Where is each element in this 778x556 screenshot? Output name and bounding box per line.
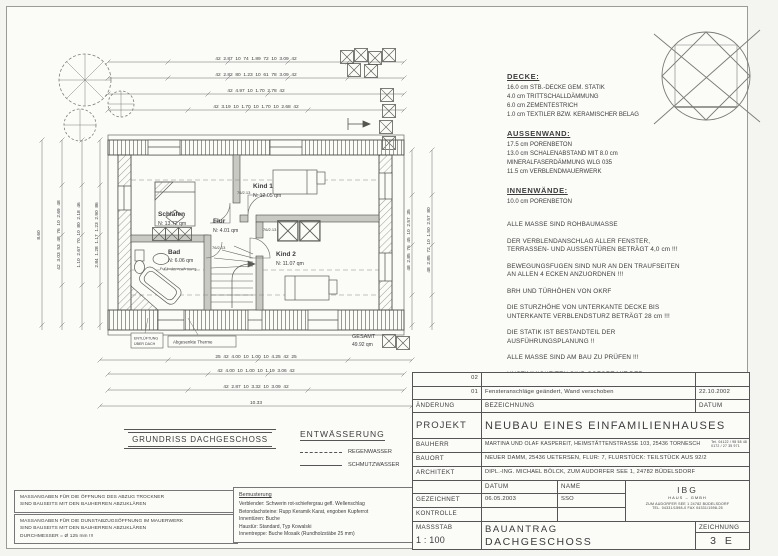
aussenwand-heading: AUSSENWAND: — [507, 129, 745, 138]
revision-date: 22.10.2002 — [695, 386, 749, 399]
kontrolle-datum — [481, 507, 557, 521]
wastewater-line-sample — [300, 465, 342, 466]
innenwaende-lines: 10.0 cm PORENBETON — [507, 198, 745, 207]
svg-text:42 2.87 10 74 1.89 72 10: 42 2.87 10 74 1.89 72 10 3.09 42 — [215, 56, 297, 62]
svg-text:76/2.13: 76/2.13 — [237, 190, 251, 195]
revision-nr: 02 — [413, 373, 481, 386]
revision-text: Fensteranschläge geändert, Wand verschob… — [481, 386, 695, 399]
kontrolle-name — [557, 507, 625, 521]
svg-text:10.33: 10.33 — [250, 400, 262, 406]
shrub-icon — [341, 49, 410, 350]
company-phone: TEL. 04331/1598-0 FAX 04331/1598-25 — [629, 506, 746, 510]
svg-text:Abgesenkte Therme: Abgesenkte Therme — [173, 340, 213, 345]
svg-text:8.60: 8.60 — [36, 230, 42, 240]
svg-text:GESAMT: GESAMT — [352, 334, 376, 340]
company-sub: HAUS – GMBH — [629, 495, 746, 500]
floor-plan-drawing: 76/2.13 76/2.13 76/2.13 Schlafen Kind 1 … — [8, 18, 498, 428]
room-flur-name: Flur — [213, 218, 226, 225]
architekt-value: DIPL.-ING. MICHAEL BÖLCK, ZUM AUDORFER S… — [481, 466, 749, 480]
name-col-header: NAME — [557, 480, 625, 493]
note-rohbaumasse: ALLE MASSE SIND ROHBAUMASSE — [507, 221, 745, 230]
aussenwand-lines: 17.5 cm PORENBETON 13.0 cm SCHALENABSTAN… — [507, 141, 745, 177]
total-area-label: GESAMT 49.92 qm — [352, 334, 376, 348]
bauherr-value: MARTINA UND OLAF KASPEREIT, HEIMSTÄTTENS… — [481, 438, 749, 452]
projekt-value: NEUBAU EINES EINFAMILIENHAUSES — [481, 412, 749, 438]
svg-text:42 4.00 10 1.00 10 1.19: 42 4.00 10 1.00 10 1.19 3.06 42 — [217, 368, 295, 374]
sheet-name: DACHGESCHOSS — [485, 536, 692, 548]
bed-kind1 — [273, 170, 325, 194]
svg-text:N: 13.72 qm: N: 13.72 qm — [158, 221, 186, 227]
rainwater-label: REGENWASSER — [348, 449, 392, 455]
bemusterung-box: Bemusterung Verblender: Schwerin rot-sch… — [233, 487, 419, 543]
svg-text:48 2.85 76 45 10 2.57 35: 48 2.85 76 45 10 2.57 35 — [406, 209, 412, 271]
svg-text:42 2.82 80 1.23 10 61 78: 42 2.82 80 1.23 10 61 78 3.09 42 — [215, 72, 297, 78]
gezeichnet-label: GEZEICHNET — [413, 493, 481, 507]
drainage-legend: ENTWÄSSERUNG REGENWASSER SCHMUTZWASSER — [300, 424, 420, 468]
note-bewegungsfugen: BEWEGUNGSFUGEN SIND NUR AN DEN TRAUFSEIT… — [507, 263, 745, 280]
decke-lines: 16.0 cm STB.-DECKE GEM. STATIK 4.0 cm TR… — [507, 84, 745, 120]
wastewater-label: SCHMUTZWASSER — [348, 462, 399, 468]
svg-text:42 4.97 10 1.70 2.78 42: 42 4.97 10 1.70 2.78 42 — [227, 88, 285, 94]
zeichnung-label: ZEICHNUNG — [696, 522, 749, 533]
dimension-chain-top: 42 2.87 10 74 1.89 72 10 3.09 42 42 2.82… — [106, 56, 407, 113]
gezeichnet-datum: 06.05.2003 — [481, 493, 557, 507]
bemusterung-title: Bemusterung — [239, 491, 413, 499]
wardrobe-kind2 — [278, 221, 320, 241]
svg-text:48 2.85 72 10 1.50 2.57: 48 2.85 72 10 1.50 2.57 80 — [426, 207, 432, 273]
svg-text:N: 12.05 qm: N: 12.05 qm — [253, 193, 281, 199]
svg-text:25 42 4.00 10 1.00 10 4.: 25 42 4.00 10 1.00 10 4.25 42 25 — [215, 354, 297, 360]
svg-text:N: 11.07 qm: N: 11.07 qm — [276, 261, 304, 267]
bed-kind2 — [285, 276, 337, 300]
room-schlafen-name: Schlafen — [158, 211, 185, 218]
svg-text:N: 4.01 qm: N: 4.01 qm — [213, 228, 238, 234]
svg-text:42 2.87 10 3.32 10 3.09: 42 2.87 10 3.32 10 3.09 42 — [223, 384, 289, 390]
bemusterung-lines: Verblender: Schwerin rot-schiefergrau ge… — [239, 501, 413, 539]
drawing-title: GRUNDRISS DACHGESCHOSS — [128, 432, 272, 447]
bed-schlafen — [155, 182, 195, 226]
svg-text:N: 6.06 qm: N: 6.06 qm — [168, 258, 193, 264]
note-sturzhoehe: DIE STURZHÖHE VON UNTERKANTE DECKE BIS U… — [507, 304, 745, 321]
svg-text:76/2.13: 76/2.13 — [212, 245, 226, 250]
svg-text:76/2.13: 76/2.13 — [263, 227, 277, 232]
bauherr-phone: Tel. 04122 / 98 58 48 0172 / 27 35 971 — [711, 440, 747, 449]
dimension-chain-bottom: 25 42 4.00 10 1.00 10 4.25 42 25 42 4.00… — [98, 354, 415, 409]
rainwater-line-sample — [300, 452, 342, 453]
room-kind1-name: Kind 1 — [253, 183, 273, 190]
datum-col-header: DATUM — [481, 480, 557, 493]
aenderung-header: ÄNDERUNG — [413, 399, 481, 412]
svg-text:ENTLÜFTUNG: ENTLÜFTUNG — [134, 337, 158, 341]
revision-text — [481, 373, 695, 386]
dimension-chain-left: 8.60 42 3.03 53 48 76 10 2.69 48 1.10 2.… — [36, 138, 103, 331]
room-kind2-name: Kind 2 — [276, 251, 296, 258]
massstab-value: 1 : 100 — [416, 535, 478, 545]
staircase — [211, 246, 255, 308]
datum-header: DATUM — [695, 399, 749, 412]
title-block: 02 01 Fensteranschläge geändert, Wand ve… — [412, 372, 750, 550]
bad-floor-heating-note: Fußbodenerwärmung — [160, 267, 196, 271]
svg-text:2.84 1.28 1.17 1.23 2.90: 2.84 1.28 1.17 1.23 2.90 86 — [94, 202, 100, 268]
phase-cell: BAUANTRAG DACHGESCHOSS — [481, 521, 695, 549]
company-stamp: IBG HAUS – GMBH ZUM AUDORFER SEE 1 24782… — [625, 480, 749, 521]
revision-date — [695, 373, 749, 386]
svg-text:42 3.03 53 48 76 10 2.69: 42 3.03 53 48 76 10 2.69 48 — [56, 200, 62, 270]
innenwaende-heading: INNENWÄNDE: — [507, 186, 745, 195]
note-brh: BRH UND TÜRHÖHEN VON OKRF — [507, 288, 745, 297]
section-marker-icon — [348, 118, 370, 130]
company-name: IBG — [629, 485, 746, 495]
kontrolle-label: KONTROLLE — [413, 507, 481, 521]
room-bad-name: Bad — [168, 249, 180, 256]
bauort-label: BAUORT — [413, 452, 481, 466]
svg-text:49.92 qm: 49.92 qm — [352, 342, 373, 348]
architekt-label: ARCHITEKT — [413, 466, 481, 480]
zeichnung-nr: 3 E — [696, 533, 749, 547]
svg-text:42 3.19 10 1.70 10 1.70: 42 3.19 10 1.70 10 1.70 10 2.68 42 — [213, 104, 299, 110]
projekt-label: PROJEKT — [413, 412, 481, 438]
site-note-dryer: MASSANGABEN FÜR DIE ÖFFNUNG DES ABZUG TR… — [14, 490, 238, 513]
specification-column: DECKE: 16.0 cm STB.-DECKE GEM. STATIK 4.… — [507, 72, 745, 388]
decke-heading: DECKE: — [507, 72, 745, 81]
phase-label: BAUANTRAG — [485, 524, 692, 535]
tree-icon — [59, 54, 134, 141]
site-note-vent: MASSANGABEN FÜR DIE DUNSTABZUGSÖFFNUNG I… — [14, 514, 238, 544]
note-pruefen: ALLE MASSE SIND AM BAU ZU PRÜFEN !!! — [507, 354, 745, 363]
bauort-value: NEUER DAMM, 25436 UETERSEN, FLUR: 7, FLU… — [481, 452, 749, 466]
dimension-chain-right: 48 2.85 76 45 10 2.57 35 48 2.85 72 10 1… — [406, 148, 435, 331]
massstab-cell: MASSSTAB 1 : 100 — [413, 521, 481, 549]
svg-text:1.10 2.67 70 10 80 2.18: 1.10 2.67 70 10 80 2.18 46 — [76, 202, 82, 268]
note-verblendanschlag: DER VERBLENDANSCHLAG ALLER FENSTER, TERR… — [507, 238, 745, 255]
zeichnung-cell: ZEICHNUNG 3 E — [695, 521, 749, 549]
massstab-label: MASSSTAB — [416, 524, 478, 531]
note-statik: DIE STATIK IST BESTANDTEIL DER AUSFÜHRUN… — [507, 329, 745, 346]
drawing-title-block: GRUNDRISS DACHGESCHOSS — [124, 429, 276, 449]
bezeichnung-header: BEZEICHNUNG — [481, 399, 695, 412]
bauherr-label: BAUHERR — [413, 438, 481, 452]
drainage-legend-title: ENTWÄSSERUNG — [300, 429, 385, 441]
gezeichnet-name: SSO — [557, 493, 625, 507]
revision-nr: 01 — [413, 386, 481, 399]
svg-text:ÜBER DACH: ÜBER DACH — [134, 342, 156, 346]
empty-cell — [413, 480, 481, 493]
